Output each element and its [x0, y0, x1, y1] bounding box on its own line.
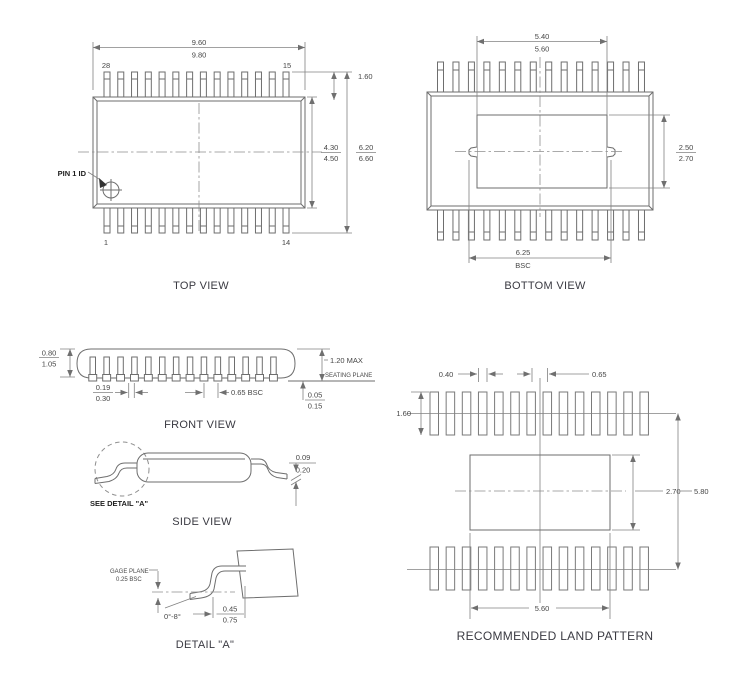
bottom-view-label: BOTTOM VIEW	[504, 280, 586, 292]
land-pitch-dimension: 0.65	[517, 368, 607, 382]
top-body-length-dimension: 4.30 4.50	[307, 97, 341, 208]
svg-text:2.70: 2.70	[679, 154, 694, 163]
height-dimensions: 1.20 MAX SEATING PLANE 0.05 0.15	[288, 349, 375, 411]
svg-text:5.60: 5.60	[535, 604, 550, 613]
center-pad-height-dimension: 2.70	[612, 455, 681, 530]
side-view: SEE DETAIL "A" 0.09 0.20 SIDE VIEW	[90, 442, 316, 528]
svg-text:1.60: 1.60	[396, 409, 411, 418]
see-detail-a-label: SEE DETAIL "A"	[90, 499, 149, 508]
svg-text:4.50: 4.50	[324, 154, 339, 163]
top-view-pins-lower	[104, 208, 289, 233]
pitch-dimension: 0.65 BSC	[185, 383, 264, 398]
land-pads-lower	[430, 547, 648, 590]
svg-text:GAGE PLANE: GAGE PLANE	[110, 569, 149, 575]
pad-notch-right	[607, 147, 615, 157]
svg-text:0.05: 0.05	[308, 391, 323, 400]
svg-text:0.45: 0.45	[223, 605, 238, 614]
svg-text:0.75: 0.75	[223, 616, 238, 625]
bottom-view-pins-upper	[438, 62, 645, 92]
body-thickness-dimension: 0.80 1.05	[39, 349, 75, 378]
land-pattern: 1.60 0.40 0.65 2.70 5.80	[396, 368, 708, 643]
pin-number-15: 15	[283, 61, 291, 70]
foot-angle-annotation: 0°-8°	[164, 597, 196, 622]
pad-width-dimension: 5.40 5.60	[477, 32, 607, 115]
svg-text:1.05: 1.05	[42, 360, 57, 369]
left-lead	[95, 463, 137, 484]
svg-text:9.80: 9.80	[192, 51, 207, 60]
pin1-label: PIN 1 ID	[58, 169, 87, 178]
svg-text:4.30: 4.30	[324, 143, 339, 152]
svg-text:0.80: 0.80	[42, 349, 57, 358]
top-view-label: TOP VIEW	[173, 280, 229, 292]
land-pad-width-dimension: 0.40	[439, 368, 503, 382]
svg-text:0.65 BSC: 0.65 BSC	[231, 388, 264, 397]
package-outline-drawing: PIN 1 ID 9.60 9.80 28 15 1 14 4.30 4.50 …	[0, 0, 742, 676]
side-view-label: SIDE VIEW	[172, 516, 232, 528]
pin-number-1: 1	[104, 238, 108, 247]
right-lead	[251, 459, 287, 479]
row-span-dimension: 5.80	[678, 414, 709, 570]
detail-a-view: GAGE PLANE 0.25 BSC 0°-8° 0.45 0.75 DETA…	[110, 549, 298, 651]
land-pattern-label: RECOMMENDED LAND PATTERN	[457, 629, 654, 643]
svg-text:0.30: 0.30	[96, 394, 111, 403]
svg-text:0.15: 0.15	[308, 402, 323, 411]
pin-number-14: 14	[282, 238, 290, 247]
svg-text:6.60: 6.60	[359, 154, 374, 163]
svg-text:0.09: 0.09	[296, 453, 311, 462]
top-view: PIN 1 ID 9.60 9.80 28 15 1 14 4.30 4.50 …	[58, 38, 376, 292]
pad-notch-left	[469, 147, 477, 157]
gage-plane-callout: GAGE PLANE 0.25 BSC	[110, 569, 158, 613]
svg-text:0°-8°: 0°-8°	[164, 612, 181, 621]
svg-text:6.25: 6.25	[516, 248, 531, 257]
svg-text:0.20: 0.20	[296, 466, 311, 475]
svg-text:5.40: 5.40	[535, 32, 550, 41]
pin-number-28: 28	[102, 61, 110, 70]
front-view-pins	[89, 357, 278, 381]
svg-text:0.65: 0.65	[592, 370, 607, 379]
svg-text:6.20: 6.20	[359, 143, 374, 152]
front-view: 0.80 1.05 1.20 MAX SEATING PLANE 0.05 0.…	[39, 349, 375, 432]
svg-text:0.25 BSC: 0.25 BSC	[116, 577, 142, 583]
detail-a-label: DETAIL "A"	[176, 639, 235, 651]
lead-thickness-dimension: 0.09 0.20	[289, 453, 316, 506]
svg-text:5.80: 5.80	[694, 487, 709, 496]
front-view-label: FRONT VIEW	[164, 419, 236, 431]
lead-width-dimension: 0.19 0.30	[93, 383, 148, 403]
body-section	[237, 549, 298, 598]
svg-text:9.60: 9.60	[192, 38, 207, 47]
seating-plane-label: SEATING PLANE	[325, 373, 372, 379]
overall-height-dim: 1.20 MAX	[330, 356, 363, 365]
svg-text:2.50: 2.50	[679, 143, 694, 152]
lead-length-dim: 1.60	[358, 72, 373, 81]
drawing-canvas: PIN 1 ID 9.60 9.80 28 15 1 14 4.30 4.50 …	[0, 0, 742, 676]
svg-text:BSC: BSC	[515, 261, 531, 270]
svg-text:5.60: 5.60	[535, 45, 550, 54]
bottom-view: 5.40 5.60 2.50 2.70 6.25 BSC BOTTOM VIEW	[427, 32, 696, 292]
body-side-profile	[137, 453, 251, 482]
svg-text:0.40: 0.40	[439, 370, 454, 379]
svg-text:0.19: 0.19	[96, 383, 111, 392]
svg-text:2.70: 2.70	[666, 487, 681, 496]
bottom-view-pins-lower	[438, 210, 645, 240]
top-view-pins-upper	[104, 72, 289, 97]
